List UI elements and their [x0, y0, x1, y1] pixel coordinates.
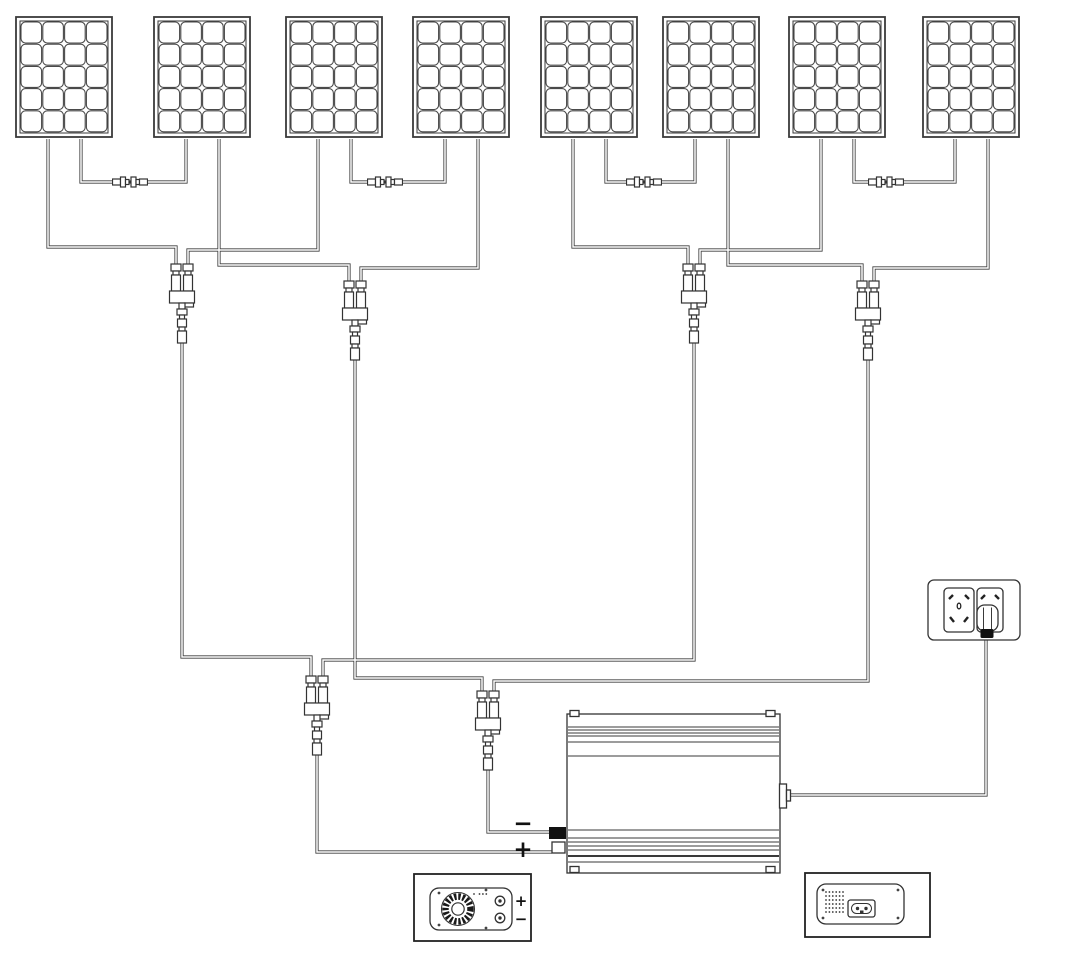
wire-y2-to-y6 — [355, 358, 482, 692]
wire-y3-to-y5 — [323, 341, 694, 677]
wall-outlet — [928, 580, 1020, 640]
wire-y1-to-y5 — [182, 341, 311, 677]
plug-cable-boot — [981, 629, 994, 638]
dc-minus-label: − — [513, 811, 532, 837]
fan-hub — [452, 903, 464, 915]
wire-series-link-1 — [81, 139, 186, 182]
wire-y3-to-y5 — [323, 341, 694, 677]
inverter-ac-connector-tip — [787, 790, 791, 801]
wire-panel1-to-y1 — [48, 139, 176, 265]
solar-panel-4 — [413, 17, 509, 137]
mc4-series-connector-4 — [869, 177, 904, 187]
wire-panel2-to-y2 — [219, 139, 349, 282]
wire-y1-to-y5 — [182, 341, 311, 677]
wire-panel3-to-y1 — [188, 139, 318, 265]
inverter-ac-face-detail-box — [805, 873, 930, 937]
dc-plus-label: + — [513, 837, 532, 863]
solar-panel-6 — [663, 17, 759, 137]
wire-series-link-1 — [81, 139, 186, 182]
iec-inlet-icon — [848, 900, 875, 917]
wire-y4-to-y6 — [494, 358, 868, 692]
y-branch-connector-3 — [682, 264, 707, 343]
wire-cores — [48, 139, 988, 852]
wire-panel6-to-y4 — [728, 139, 862, 282]
mc4-series-connector-3 — [627, 177, 662, 187]
grid-tie-inverter: − + — [513, 711, 790, 874]
wire-panel7-to-y3 — [700, 139, 821, 265]
box-plus-label: + — [515, 892, 528, 910]
wire-panel7-to-y3 — [700, 139, 821, 265]
y-branch-connector-6 — [476, 691, 501, 770]
solar-panel-1 — [16, 17, 112, 137]
wiring-diagram-page: − + — [0, 0, 1080, 975]
mc4-series-connector-1 — [113, 177, 148, 187]
wire-series-link-3 — [606, 139, 695, 182]
inverter-dc-minus-terminal — [549, 827, 566, 839]
inverter-ac-connector — [780, 784, 787, 808]
outlet-socket-left — [944, 588, 974, 632]
wire-ac-cable — [788, 640, 986, 795]
wire-series-link-3 — [606, 139, 695, 182]
solar-panel-7 — [789, 17, 885, 137]
wire-ac-cable — [788, 640, 986, 795]
dc-minus-terminal-pin — [498, 916, 501, 919]
y-branch-connector-1 — [170, 264, 195, 343]
wire-panel5-to-y3 — [573, 139, 688, 265]
wiring-diagram: − + — [0, 0, 1080, 975]
inverter-body — [567, 714, 780, 873]
box-minus-label: − — [515, 910, 528, 928]
wire-panel6-to-y4 — [728, 139, 862, 282]
solar-panel-5 — [541, 17, 637, 137]
inverter-dc-face-detail-box: + − — [414, 874, 531, 941]
wire-panel4-to-y2 — [361, 139, 478, 282]
wire-panel8-to-y4 — [874, 139, 988, 282]
wire-y4-to-y6 — [494, 358, 868, 692]
y-branch-connector-2 — [343, 281, 368, 360]
wire-series-link-4 — [854, 139, 955, 182]
mc4-series-connector-2 — [368, 177, 403, 187]
wire-panel8-to-y4 — [874, 139, 988, 282]
solar-panel-8 — [923, 17, 1019, 137]
y-branch-connector-4 — [856, 281, 881, 360]
wires — [48, 139, 988, 852]
inverter-dc-plus-terminal — [552, 842, 565, 853]
dc-plus-terminal-pin — [498, 899, 501, 902]
plug-body — [977, 605, 998, 631]
solar-panel-2 — [154, 17, 250, 137]
wire-series-link-2 — [351, 139, 445, 182]
wire-panel3-to-y1 — [188, 139, 318, 265]
y-branch-connector-5 — [305, 676, 330, 755]
wire-series-link-2 — [351, 139, 445, 182]
wire-panel2-to-y2 — [219, 139, 349, 282]
wire-series-link-4 — [854, 139, 955, 182]
solar-panel-3 — [286, 17, 382, 137]
wire-panel4-to-y2 — [361, 139, 478, 282]
wire-y2-to-y6 — [355, 358, 482, 692]
